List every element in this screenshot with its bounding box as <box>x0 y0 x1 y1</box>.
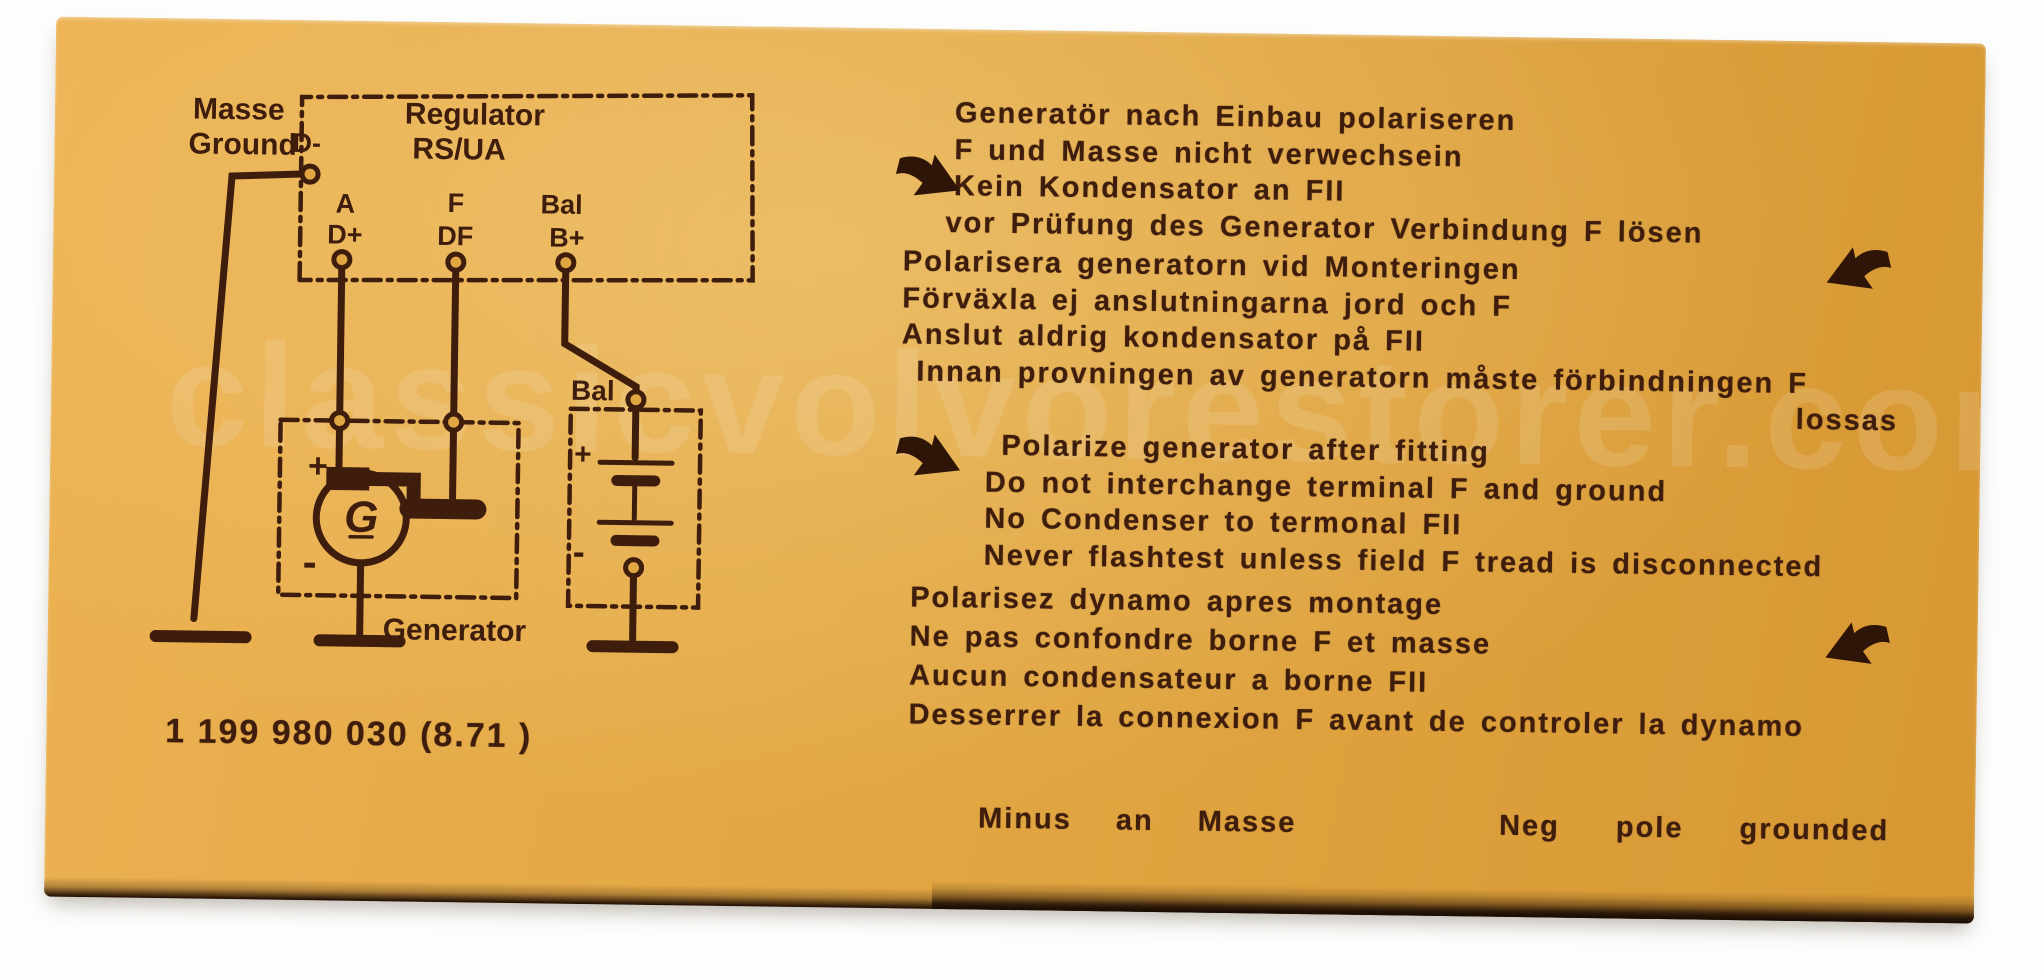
footer-word: pole <box>1616 811 1684 845</box>
regulator-model: RS/UA <box>412 133 506 167</box>
bplus-wire <box>564 272 638 392</box>
arrow-down-left-icon <box>1818 241 1895 304</box>
terminal-f-label: F <box>447 188 464 218</box>
generator-symbol: G <box>344 493 379 542</box>
part-number: 1 199 980 030 (8.71 ) <box>165 712 533 756</box>
footer-word: grounded <box>1739 813 1889 848</box>
arrow-down-left-icon <box>1817 616 1894 679</box>
ground-symbol-battery <box>592 646 672 647</box>
regulator-instruction-decal: classicvolvorestorer.com <box>44 17 1986 924</box>
masse-label: Masse <box>193 92 285 126</box>
instructions-english: Polarize generator after fitting Do not … <box>984 428 1825 586</box>
footer-minus-an-masse: Minus an Masse <box>978 803 1297 840</box>
decal-bottom-edge-shadow-right <box>932 881 1979 924</box>
arrow-down-right-icon <box>892 428 969 491</box>
generator-label: Generator <box>382 613 526 648</box>
terminal-a-label: A <box>335 188 355 218</box>
instructions-swedish: Polarisera generatorn vid Monteringen Fö… <box>901 243 1810 402</box>
field-bar-thick <box>409 509 476 510</box>
battery-ground-wire <box>633 576 634 641</box>
instructions-french: Polarisez dynamo apres montage Ne pas co… <box>908 579 1806 747</box>
ground-symbol-masse <box>156 636 246 637</box>
arrow-down-right-icon <box>892 148 969 211</box>
footer-word: Neg <box>1499 810 1560 844</box>
footer-word: Minus <box>978 803 1072 837</box>
generator-plus: + <box>308 447 328 485</box>
df-wire <box>454 271 456 413</box>
battery-minus: - <box>573 531 586 572</box>
terminal-dplus-circle <box>334 251 350 267</box>
ground-label: Ground <box>188 127 297 162</box>
terminal-dminus-label: D- <box>292 128 321 158</box>
generator-minus: - <box>302 538 317 585</box>
footer-neg-pole-grounded: Neg pole grounded <box>1499 810 1890 848</box>
wiring-diagram: Masse Ground D- Regulator RS/UA A D+ F D… <box>46 37 816 748</box>
terminal-bplus-circle <box>558 255 574 271</box>
footer-word: an <box>1116 804 1154 838</box>
terminal-bal-label: Bal <box>540 189 582 220</box>
instructions-german: Generatör nach Einbau polariseren F und … <box>953 95 1705 251</box>
photo-background: classicvolvorestorer.com <box>0 0 2042 977</box>
terminal-dminus-circle <box>302 166 318 182</box>
battery-plus: + <box>574 438 592 471</box>
generator-ground-wire <box>360 563 361 635</box>
dplus-wire <box>340 269 342 412</box>
terminal-bplus-label: B+ <box>549 222 585 252</box>
terminal-df-circle <box>448 254 464 270</box>
terminal-dplus-label: D+ <box>327 219 363 249</box>
terminal-df-label: DF <box>437 221 473 251</box>
footer-word: Masse <box>1197 806 1296 840</box>
regulator-title: Regulator <box>405 97 546 132</box>
swedish-line-lossas: lossas <box>1796 404 1899 438</box>
battery-bal-label: Bal <box>571 375 615 407</box>
ground-wire <box>194 173 302 620</box>
